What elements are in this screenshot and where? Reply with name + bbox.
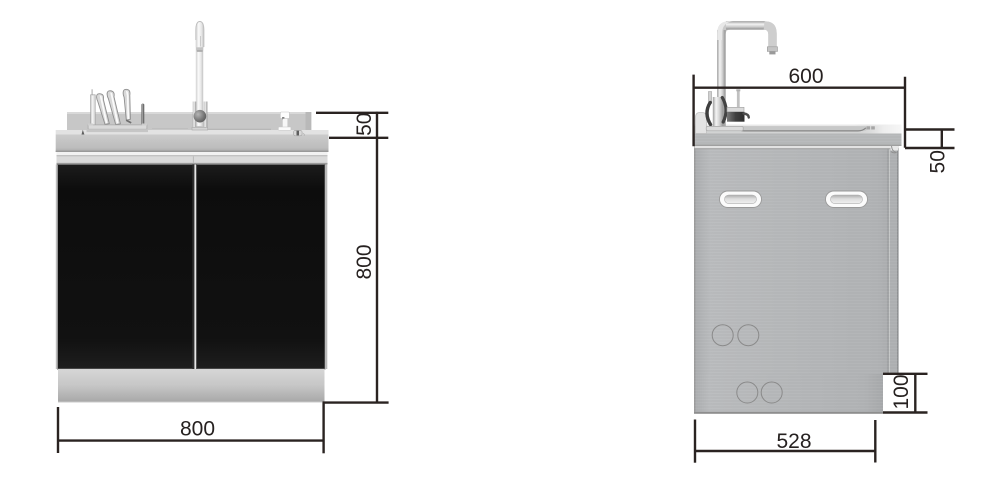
svg-text:50: 50 bbox=[926, 150, 949, 173]
svg-text:600: 600 bbox=[788, 65, 823, 88]
svg-text:50: 50 bbox=[353, 113, 376, 136]
svg-text:100: 100 bbox=[890, 374, 913, 409]
svg-text:528: 528 bbox=[776, 430, 811, 453]
svg-text:800: 800 bbox=[353, 244, 376, 279]
svg-text:800: 800 bbox=[180, 417, 215, 440]
